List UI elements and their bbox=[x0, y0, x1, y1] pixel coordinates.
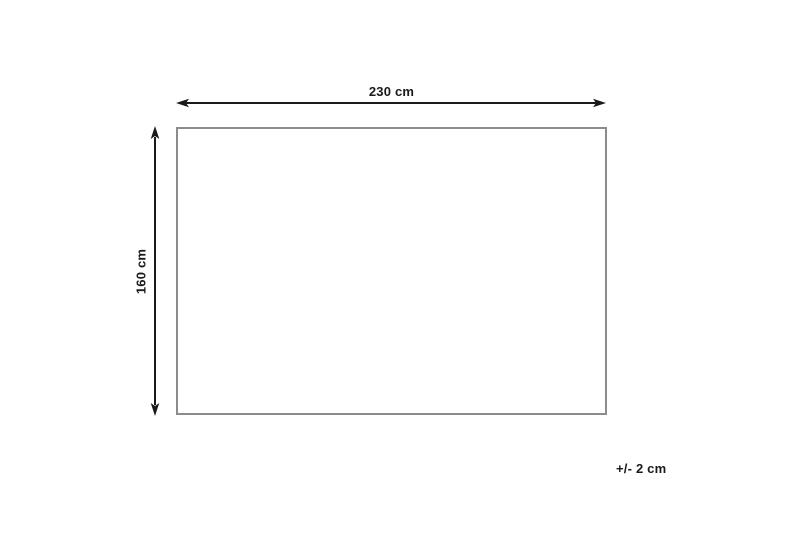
dimension-diagram: 230 cm 160 cm +/- 2 cm bbox=[0, 0, 800, 533]
width-dimension-label: 230 cm bbox=[176, 84, 607, 99]
width-dimension-arrow bbox=[176, 99, 606, 108]
arrow-layer bbox=[0, 0, 800, 533]
height-dimension-arrow bbox=[151, 126, 160, 416]
tolerance-label: +/- 2 cm bbox=[616, 461, 666, 476]
height-dimension-label: 160 cm bbox=[134, 210, 149, 334]
